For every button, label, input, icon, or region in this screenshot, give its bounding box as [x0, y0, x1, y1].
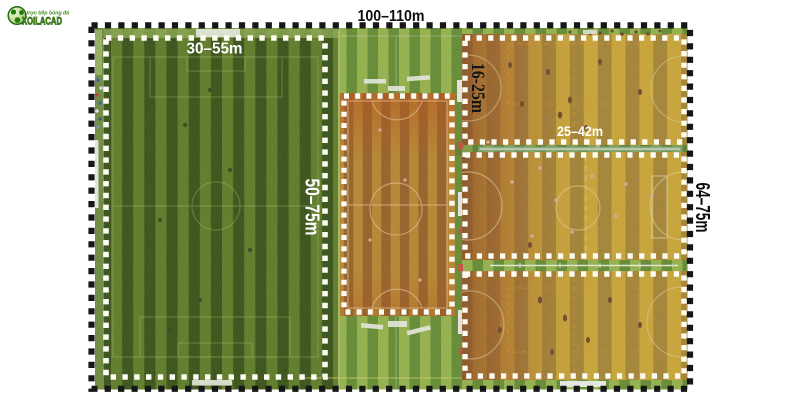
svg-text:100–110m: 100–110m — [358, 8, 425, 25]
svg-text:64–75m: 64–75m — [691, 183, 713, 233]
svg-text:50–75m: 50–75m — [301, 179, 323, 236]
svg-text:25–42m: 25–42m — [557, 123, 603, 139]
svg-text:30–55m: 30–55m — [187, 41, 243, 58]
svg-text:16-25m: 16-25m — [467, 63, 488, 113]
svg-text:XOILACAD: XOILACAD — [22, 16, 62, 28]
